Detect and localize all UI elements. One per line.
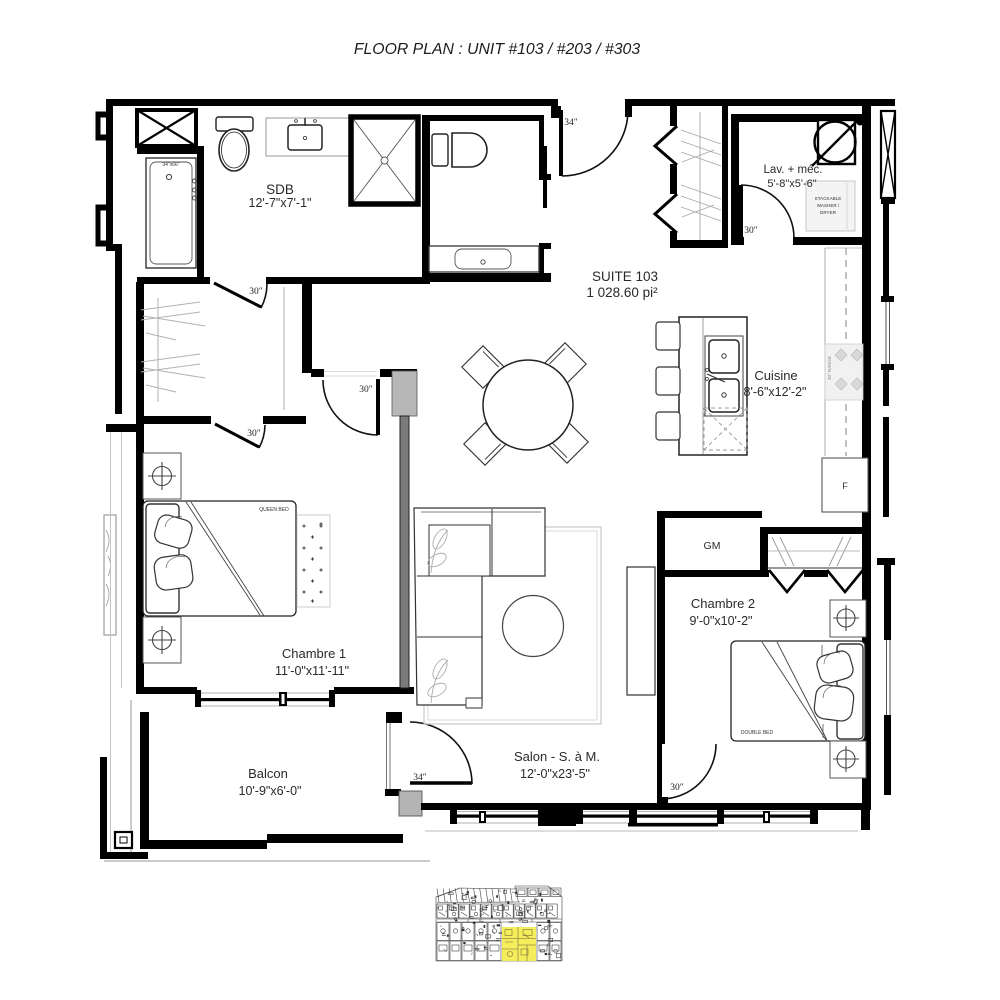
svg-text:30″: 30″ bbox=[249, 287, 263, 297]
svg-text:Chambre 2: Chambre 2 bbox=[691, 596, 755, 611]
svg-text:F: F bbox=[842, 481, 848, 491]
svg-text:Lav. + méc.: Lav. + méc. bbox=[764, 164, 823, 176]
svg-text:SDB: SDB bbox=[266, 182, 294, 197]
svg-text:34"x66": 34"x66" bbox=[162, 162, 179, 168]
svg-text:GM: GM bbox=[704, 540, 721, 552]
svg-text:12'-7"x7'-1": 12'-7"x7'-1" bbox=[249, 196, 312, 210]
svg-text:8'-6"x12'-2": 8'-6"x12'-2" bbox=[744, 385, 807, 399]
svg-text:QUEEN BED: QUEEN BED bbox=[259, 507, 289, 513]
svg-text:30″: 30″ bbox=[670, 783, 684, 793]
svg-text:30″: 30″ bbox=[744, 226, 758, 236]
svg-text:Salon - S. à M.: Salon - S. à M. bbox=[514, 749, 600, 764]
svg-text:Chambre 1: Chambre 1 bbox=[282, 646, 346, 661]
svg-text:30" RANGE: 30" RANGE bbox=[827, 356, 832, 380]
svg-text:SUITE 103: SUITE 103 bbox=[592, 269, 658, 284]
svg-text:STACKABLE: STACKABLE bbox=[815, 196, 842, 201]
svg-text:DRYER: DRYER bbox=[820, 210, 837, 215]
svg-text:WASHER /: WASHER / bbox=[817, 203, 840, 208]
svg-text:FLOOR PLAN : UNIT #103 / #203: FLOOR PLAN : UNIT #103 / #203 / #303 bbox=[354, 41, 640, 58]
svg-text:30″: 30″ bbox=[247, 429, 261, 439]
svg-text:10'-9"x6'-0": 10'-9"x6'-0" bbox=[239, 784, 302, 798]
svg-text:9'-0"x10'-2": 9'-0"x10'-2" bbox=[690, 614, 753, 628]
svg-text:12'-0"x23'-5": 12'-0"x23'-5" bbox=[520, 767, 590, 781]
svg-text:34″: 34″ bbox=[413, 773, 427, 783]
svg-text:DOUBLE BED: DOUBLE BED bbox=[741, 730, 774, 736]
svg-text:Balcon: Balcon bbox=[248, 766, 288, 781]
svg-text:11'-0"x11'-11": 11'-0"x11'-11" bbox=[275, 664, 349, 678]
svg-text:34″: 34″ bbox=[564, 118, 578, 128]
svg-text:30″: 30″ bbox=[359, 385, 373, 395]
svg-text:5'-8"x5'-6": 5'-8"x5'-6" bbox=[767, 178, 816, 190]
svg-text:1 028.60 pi²: 1 028.60 pi² bbox=[586, 285, 658, 300]
svg-text:Cuisine: Cuisine bbox=[754, 368, 797, 383]
